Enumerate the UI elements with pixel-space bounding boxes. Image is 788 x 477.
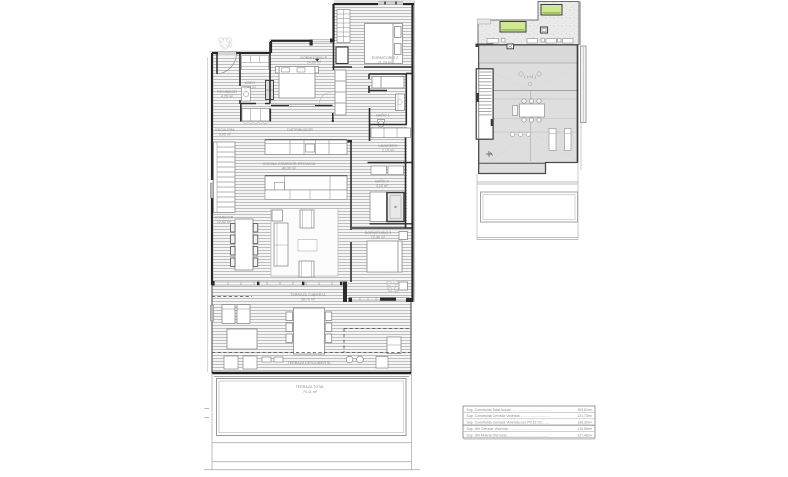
svg-text:LAVADERO: LAVADERO [378, 144, 397, 148]
svg-text:127,46m²: 127,46m² [577, 434, 593, 438]
svg-text:ASEO: ASEO [245, 81, 255, 85]
svg-text:DORMITORIO P.: DORMITORIO P. [300, 56, 327, 60]
svg-text:74,11 m²: 74,11 m² [303, 390, 318, 394]
svg-text:4,20 m²: 4,20 m² [221, 95, 234, 99]
svg-text:12,40 m²: 12,40 m² [371, 236, 386, 240]
svg-text:BAÑO 1: BAÑO 1 [376, 113, 389, 118]
svg-text:RECIBIDOR: RECIBIDOR [217, 90, 237, 94]
svg-text:163,51m²: 163,51m² [577, 408, 593, 412]
svg-text:Sup. Útil Abierta (Terraza) ..: Sup. Útil Abierta (Terraza) ............… [467, 434, 550, 438]
svg-text:DISTRIBUIDOR: DISTRIBUIDOR [287, 128, 313, 132]
svg-text:3,10 m²: 3,10 m² [376, 184, 389, 188]
svg-text:Sup. Útil Cerrada Vivienda ...: Sup. Útil Cerrada Vivienda .............… [467, 427, 551, 431]
svg-text:Sup. Construida Total Actual .: Sup. Construida Total Actual ...........… [467, 408, 552, 412]
svg-text:2,40 m²: 2,40 m² [244, 86, 257, 90]
svg-text:TERRAZA CUBIERTA: TERRAZA CUBIERTA [290, 293, 326, 297]
svg-text:Sup. Construida Cerrada Vivien: Sup. Construida Cerrada Vivienda con PP.… [467, 421, 550, 425]
svg-text:2,10 m²: 2,10 m² [382, 149, 395, 153]
svg-text:COCINA-COMEDOR-ESTANCIA: COCINA-COMEDOR-ESTANCIA [263, 162, 316, 166]
svg-text:TERRAZA DESCUBIERTA: TERRAZA DESCUBIERTA [288, 361, 331, 365]
svg-text:TERRAZA TOTAL: TERRAZA TOTAL [296, 385, 325, 389]
svg-text:11,20 m²: 11,20 m² [378, 61, 393, 65]
svg-text:9,05 m²: 9,05 m² [219, 133, 232, 137]
svg-text:121,73m²: 121,73m² [577, 414, 593, 418]
svg-text:BAÑO 2: BAÑO 2 [375, 179, 388, 184]
svg-text:DORMITORIO 3: DORMITORIO 3 [365, 231, 391, 235]
svg-text:Sup. Construida Cerrada Vivien: Sup. Construida Cerrada Vivienda .......… [467, 414, 551, 418]
svg-text:136,30m²: 136,30m² [577, 421, 593, 425]
svg-text:14,60 m²: 14,60 m² [307, 61, 322, 65]
svg-text:DORMITORIO 2: DORMITORIO 2 [372, 56, 398, 60]
svg-text:ESCALERA: ESCALERA [215, 128, 235, 132]
svg-text:( L+1 ): ( L+1 ) [524, 74, 536, 79]
svg-text:12,60 m²: 12,60 m² [217, 220, 232, 224]
svg-text:38,70 m²: 38,70 m² [301, 298, 316, 302]
svg-text:116,56m²: 116,56m² [577, 427, 592, 431]
svg-text:COMEDOR: COMEDOR [215, 216, 234, 220]
svg-text:48,30 m²: 48,30 m² [282, 167, 297, 171]
